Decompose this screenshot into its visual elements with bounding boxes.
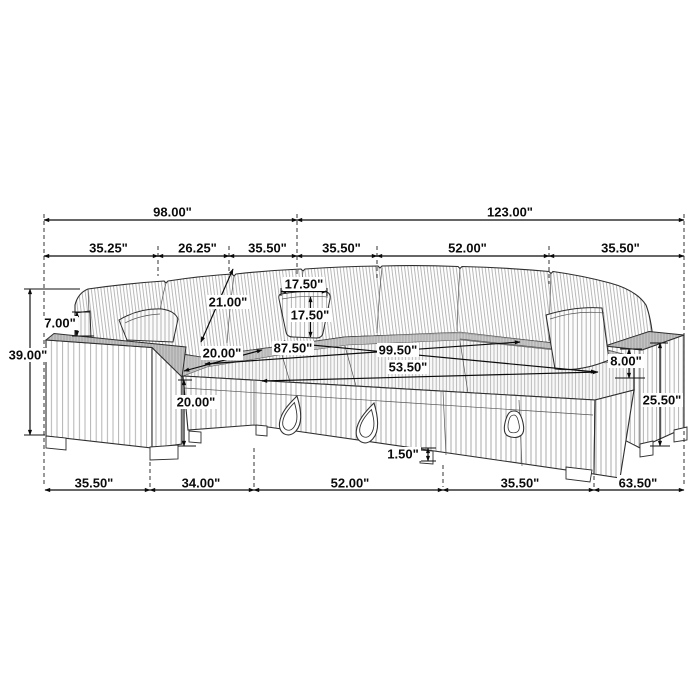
svg-text:34.00": 34.00"	[182, 476, 221, 491]
svg-text:52.00": 52.00"	[331, 476, 370, 491]
svg-text:98.00": 98.00"	[153, 205, 192, 220]
svg-text:35.50": 35.50"	[248, 241, 287, 256]
svg-text:17.50": 17.50"	[285, 277, 324, 292]
svg-text:123.00": 123.00"	[487, 205, 533, 220]
svg-text:20.00": 20.00"	[203, 346, 242, 361]
svg-text:17.50": 17.50"	[291, 308, 330, 323]
svg-text:52.00": 52.00"	[448, 241, 487, 256]
svg-text:99.50": 99.50"	[379, 343, 418, 358]
svg-text:53.50": 53.50"	[389, 360, 428, 375]
svg-text:8.00": 8.00"	[610, 354, 641, 369]
svg-text:35.50": 35.50"	[601, 241, 640, 256]
svg-text:35.25": 35.25"	[89, 241, 128, 256]
svg-text:35.50": 35.50"	[75, 476, 114, 491]
svg-text:87.50": 87.50"	[274, 341, 313, 356]
svg-text:7.00": 7.00"	[44, 316, 75, 331]
svg-text:35.50": 35.50"	[501, 476, 540, 491]
svg-text:20.00": 20.00"	[177, 395, 216, 410]
svg-text:25.50": 25.50"	[643, 393, 682, 408]
svg-text:35.50": 35.50"	[322, 241, 361, 256]
svg-text:63.50": 63.50"	[619, 476, 658, 491]
svg-text:39.00": 39.00"	[9, 348, 48, 363]
svg-text:1.50": 1.50"	[387, 447, 418, 462]
svg-text:26.25": 26.25"	[178, 241, 217, 256]
svg-text:21.00": 21.00"	[209, 295, 248, 310]
